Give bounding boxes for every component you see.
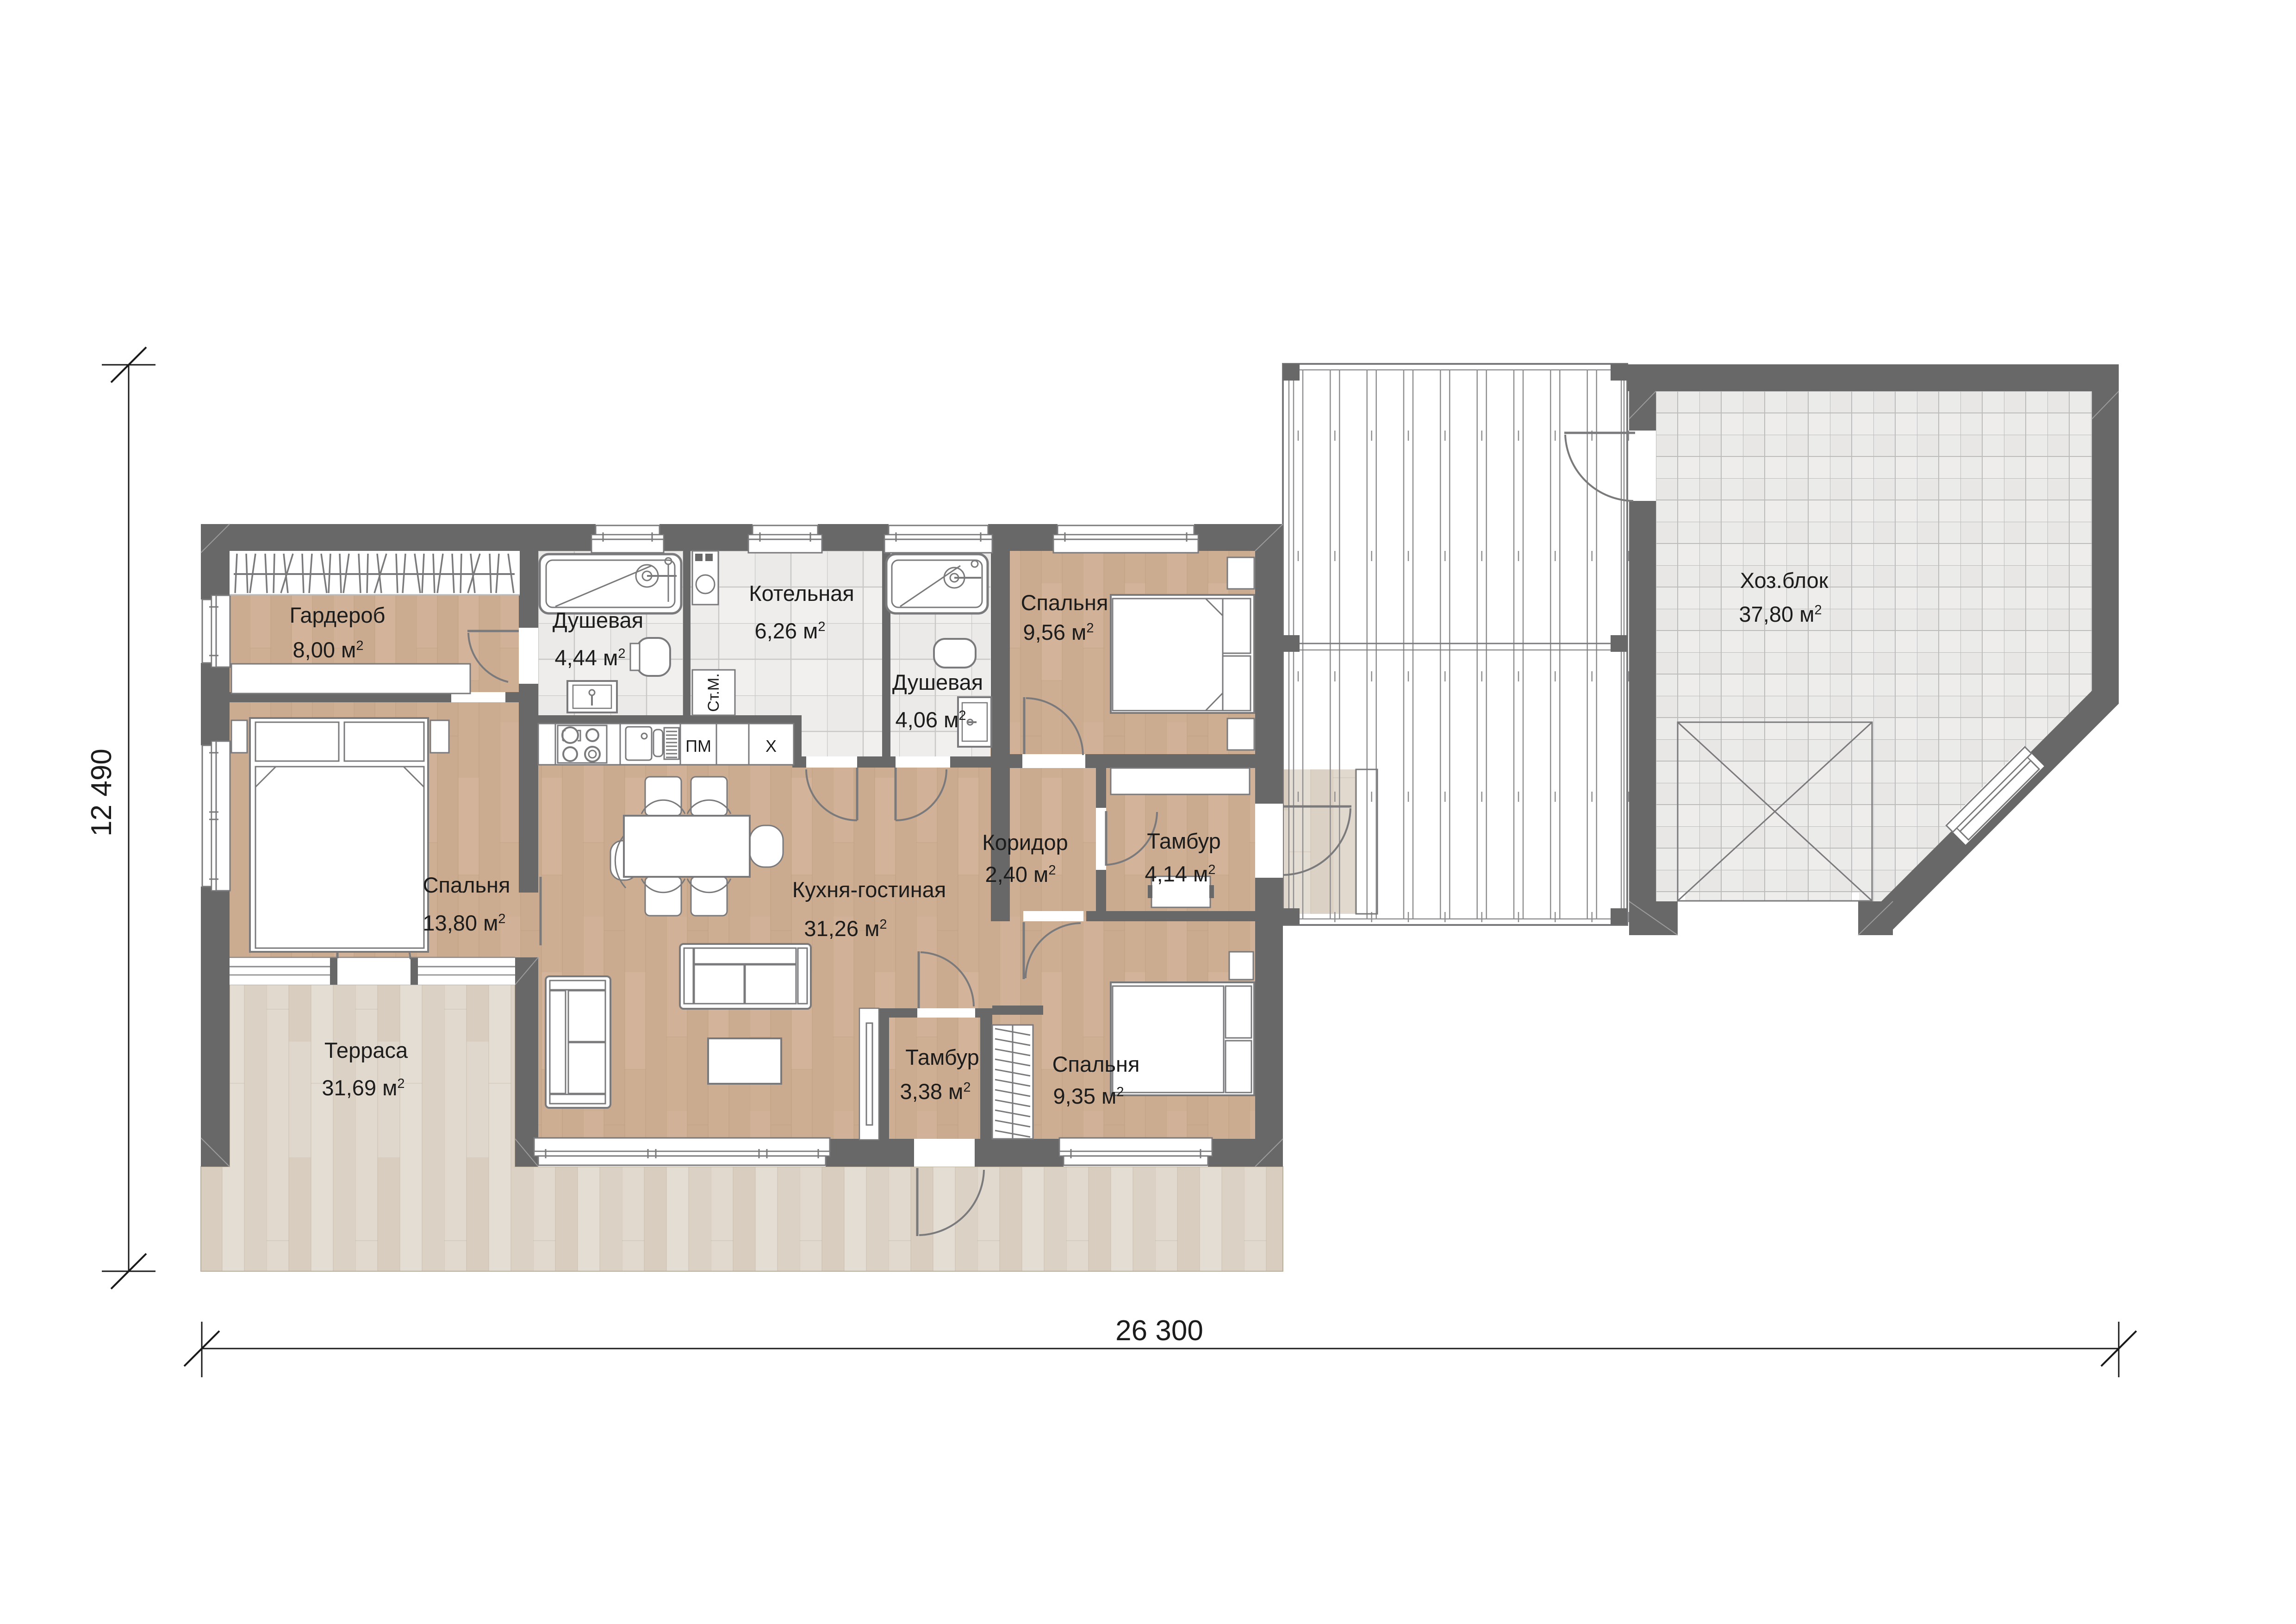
svg-text:Коридор: Коридор	[982, 830, 1068, 855]
svg-text:Душевая: Душевая	[553, 608, 643, 632]
svg-text:X: X	[765, 737, 777, 756]
svg-text:Спальня: Спальня	[423, 873, 510, 897]
svg-text:Хоз.блок: Хоз.блок	[1740, 568, 1829, 593]
svg-text:4,06 м2: 4,06 м2	[896, 707, 966, 732]
svg-text:ПМ: ПМ	[685, 737, 711, 756]
svg-text:Тамбур: Тамбур	[905, 1045, 979, 1069]
svg-text:31,26 м2: 31,26 м2	[804, 916, 887, 941]
svg-text:Ст.М.: Ст.М.	[705, 673, 722, 712]
svg-text:37,80 м2: 37,80 м2	[1739, 602, 1822, 626]
svg-text:8,00 м2: 8,00 м2	[293, 637, 364, 662]
svg-text:Гардероб: Гардероб	[290, 603, 386, 627]
svg-text:Душевая: Душевая	[892, 670, 983, 694]
svg-text:9,35 м2: 9,35 м2	[1053, 1084, 1124, 1108]
svg-text:Кухня-гостиная: Кухня-гостиная	[792, 877, 946, 902]
svg-text:Спальня: Спальня	[1021, 590, 1108, 615]
svg-text:12 490: 12 490	[86, 749, 118, 837]
svg-text:9,56 м2: 9,56 м2	[1023, 620, 1094, 644]
svg-text:6,26 м2: 6,26 м2	[755, 618, 826, 643]
svg-text:4,14 м2: 4,14 м2	[1145, 862, 1216, 886]
svg-text:13,80 м2: 13,80 м2	[423, 911, 505, 935]
svg-text:4,44 м2: 4,44 м2	[555, 645, 626, 670]
svg-text:Спальня: Спальня	[1052, 1052, 1140, 1076]
svg-text:Тамбур: Тамбур	[1147, 829, 1221, 853]
svg-text:Терраса: Терраса	[324, 1038, 408, 1062]
svg-text:31,69 м2: 31,69 м2	[322, 1075, 404, 1100]
svg-text:3,38 м2: 3,38 м2	[900, 1079, 971, 1104]
svg-text:Котельная: Котельная	[749, 581, 854, 606]
svg-text:26 300: 26 300	[1115, 1315, 1203, 1347]
svg-text:2,40 м2: 2,40 м2	[985, 862, 1056, 887]
